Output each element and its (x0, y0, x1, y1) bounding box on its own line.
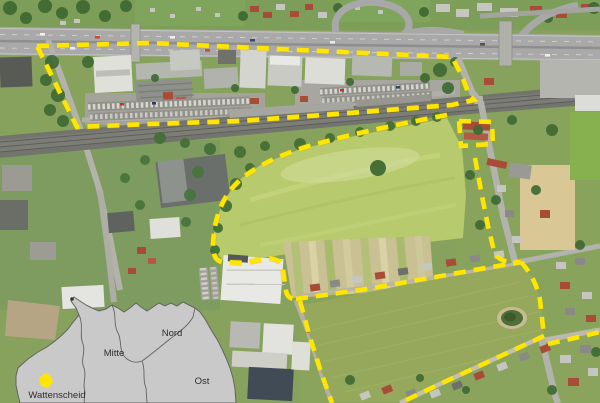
district-label-wattenscheid: Wattenscheid (28, 390, 85, 401)
district-label-nord: Nord (162, 328, 183, 339)
aerial-site-plan: Nord Mitte Ost Wattenscheid (0, 0, 600, 403)
dark-warehouse-roof (247, 367, 294, 401)
aerial-photo: Nord Mitte Ost Wattenscheid (0, 0, 600, 403)
district-label-ost: Ost (195, 376, 210, 387)
highway-bridge-east (499, 21, 512, 66)
district-label-mitte: Mitte (104, 348, 125, 359)
map-dot (70, 297, 74, 301)
